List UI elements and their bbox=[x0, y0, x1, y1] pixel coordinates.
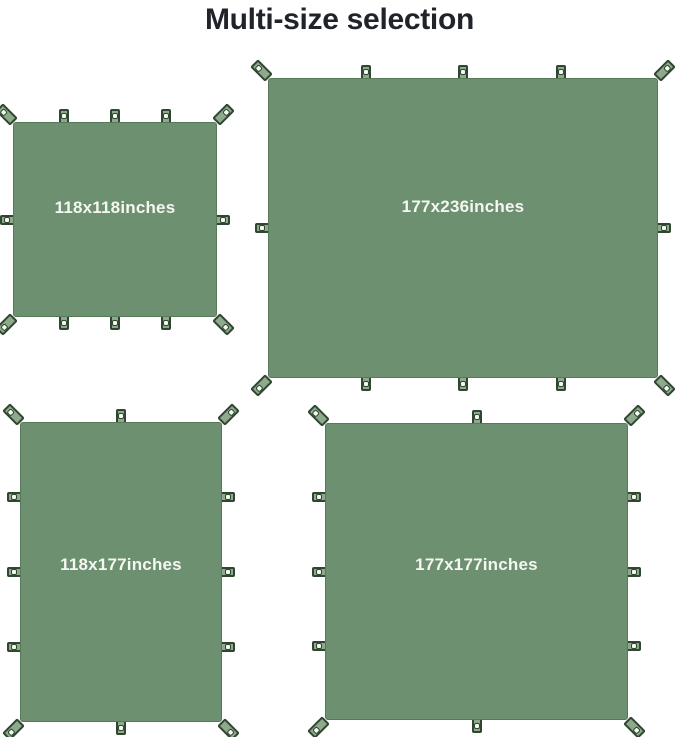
grommet-icon bbox=[11, 494, 17, 500]
page-title: Multi-size selection bbox=[0, 0, 679, 40]
attachment-loop bbox=[212, 313, 235, 336]
grommet-icon bbox=[316, 643, 322, 649]
grommet-icon bbox=[225, 494, 231, 500]
grommet-icon bbox=[225, 569, 231, 575]
grommet-icon bbox=[631, 569, 637, 575]
grommet-icon bbox=[363, 381, 369, 387]
tarp-fabric bbox=[268, 78, 658, 378]
grommet-icon bbox=[363, 69, 369, 75]
tarp-177x236: 177x236inches bbox=[268, 78, 658, 378]
grommet-icon bbox=[631, 643, 637, 649]
grommet-icon bbox=[112, 113, 118, 119]
grommet-icon bbox=[312, 726, 320, 734]
tarp-size-label: 118x118inches bbox=[13, 198, 217, 218]
grommet-icon bbox=[661, 225, 667, 231]
grommet-icon bbox=[460, 381, 466, 387]
grommet-icon bbox=[163, 320, 169, 326]
grommet-icon bbox=[163, 113, 169, 119]
grommet-icon bbox=[0, 323, 8, 331]
grommet-icon bbox=[227, 728, 235, 736]
grommet-icon bbox=[112, 320, 118, 326]
grommet-icon bbox=[11, 644, 17, 650]
grommet-icon bbox=[4, 217, 10, 223]
grommet-icon bbox=[631, 494, 637, 500]
grommet-icon bbox=[61, 320, 67, 326]
grommet-icon bbox=[558, 381, 564, 387]
grommet-icon bbox=[227, 408, 235, 416]
grommet-icon bbox=[7, 408, 15, 416]
grommet-icon bbox=[222, 108, 230, 116]
grommet-icon bbox=[11, 569, 17, 575]
tarp-fabric bbox=[13, 122, 217, 317]
grommet-icon bbox=[222, 323, 230, 331]
tarp-177x177: 177x177inches bbox=[325, 423, 628, 720]
grommet-icon bbox=[312, 409, 320, 417]
grommet-icon bbox=[663, 384, 671, 392]
grommet-icon bbox=[558, 69, 564, 75]
grommet-icon bbox=[255, 384, 263, 392]
grommet-icon bbox=[220, 217, 226, 223]
grommet-icon bbox=[316, 494, 322, 500]
tarp-118x177: 118x177inches bbox=[20, 422, 222, 722]
tarp-size-label: 177x177inches bbox=[325, 555, 628, 575]
grommet-icon bbox=[259, 225, 265, 231]
grommet-icon bbox=[316, 569, 322, 575]
grommet-icon bbox=[474, 414, 480, 420]
grommet-icon bbox=[633, 726, 641, 734]
grommet-icon bbox=[118, 725, 124, 731]
grommet-icon bbox=[7, 728, 15, 736]
grommet-icon bbox=[225, 644, 231, 650]
attachment-loop bbox=[653, 374, 676, 397]
tarp-size-label: 177x236inches bbox=[268, 197, 658, 217]
grommet-icon bbox=[474, 723, 480, 729]
grommet-icon bbox=[61, 113, 67, 119]
grommet-icon bbox=[663, 64, 671, 72]
tarp-118x118: 118x118inches bbox=[13, 122, 217, 317]
grommet-icon bbox=[0, 108, 8, 116]
grommet-icon bbox=[460, 69, 466, 75]
grommet-icon bbox=[118, 413, 124, 419]
multi-size-infographic: Multi-size selection 118x118inches 177x2… bbox=[0, 0, 679, 737]
grommet-icon bbox=[255, 64, 263, 72]
tarp-size-label: 118x177inches bbox=[20, 555, 222, 575]
grommet-icon bbox=[633, 409, 641, 417]
